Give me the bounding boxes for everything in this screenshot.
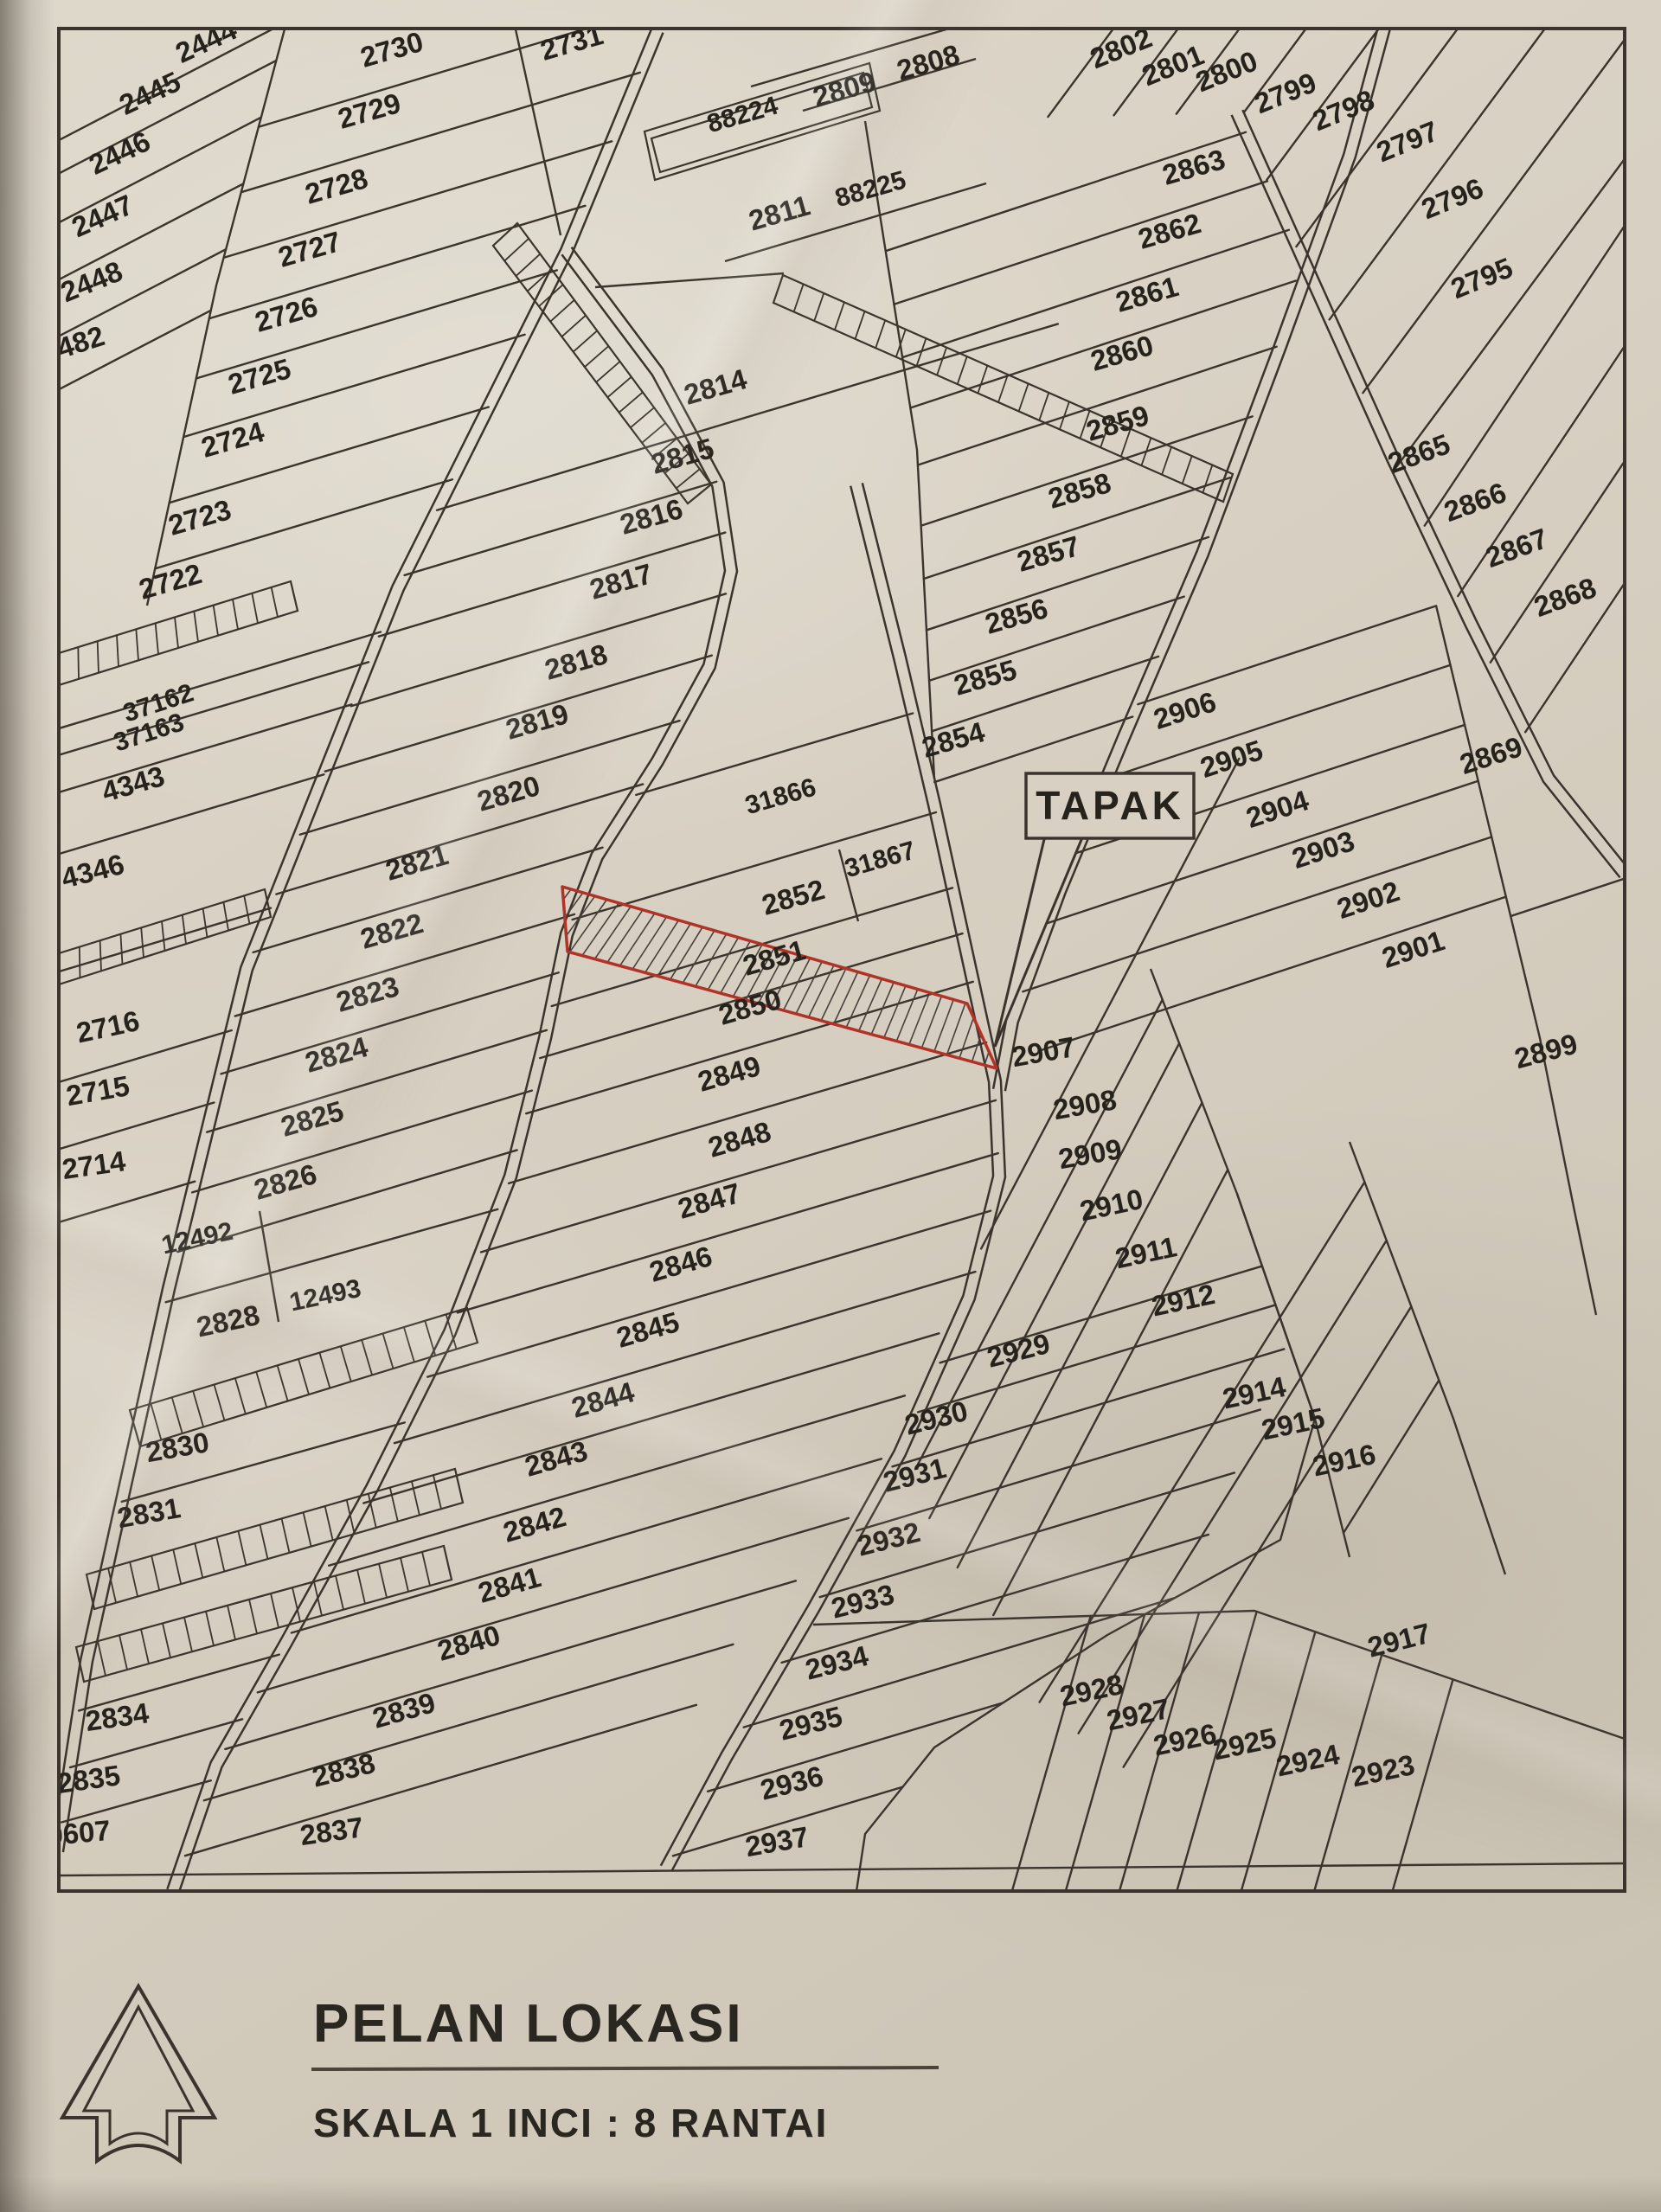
lot-label-2817: 2817 <box>586 557 656 606</box>
lot-label-2823: 2823 <box>332 970 402 1018</box>
lot-label-2855: 2855 <box>950 653 1020 702</box>
lot-label-2847: 2847 <box>674 1177 744 1225</box>
lot-label-2936: 2936 <box>757 1760 826 1806</box>
lot-label-2839: 2839 <box>369 1686 439 1734</box>
lot-label-2834: 2834 <box>83 1696 151 1737</box>
lot-label-2911: 2911 <box>1113 1230 1180 1274</box>
lot-label-2828: 2828 <box>194 1298 263 1343</box>
lot-label-2914: 2914 <box>1220 1370 1289 1415</box>
lot-label-2859: 2859 <box>1082 399 1152 447</box>
lot-label-2910: 2910 <box>1077 1183 1146 1227</box>
lot-label-2932: 2932 <box>854 1516 923 1562</box>
north-arrow-icon <box>62 1986 215 2161</box>
lot-label-2844: 2844 <box>568 1375 638 1424</box>
lot-label-2912: 2912 <box>1149 1278 1218 1322</box>
lot-label-2840: 2840 <box>433 1619 503 1667</box>
lot-label-12492: 12492 <box>159 1217 235 1260</box>
legend-block: PELAN LOKASI SKALA 1 INCI : 8 RANTAI <box>62 1986 939 2161</box>
tapak-callout-label: TAPAK <box>1036 783 1184 828</box>
lot-label-2929: 2929 <box>984 1327 1053 1374</box>
lot-label-2867: 2867 <box>1481 522 1552 574</box>
lot-label-2850: 2850 <box>715 983 785 1031</box>
lot-label-2857: 2857 <box>1013 529 1083 578</box>
lot-label-2854: 2854 <box>918 715 988 764</box>
lot-label-2819: 2819 <box>502 697 572 746</box>
lot-label-2821: 2821 <box>382 838 452 887</box>
lot-label-2730: 2730 <box>356 25 426 74</box>
lot-label-2816: 2816 <box>616 492 686 541</box>
lot-label-2858: 2858 <box>1044 466 1114 515</box>
lot-label-2444: 2444 <box>170 13 242 69</box>
lot-label-2849: 2849 <box>694 1049 764 1098</box>
plan-title: PELAN LOKASI <box>313 1994 744 2054</box>
lot-label-2820: 2820 <box>473 769 543 817</box>
lot-label-2860: 2860 <box>1087 329 1157 377</box>
lot-label-2725: 2725 <box>224 352 294 401</box>
lot-label-2937: 2937 <box>743 1820 811 1863</box>
lot-label-4343: 4343 <box>98 760 168 808</box>
lot-label-2933: 2933 <box>828 1578 897 1625</box>
lot-label-2814: 2814 <box>680 362 750 411</box>
lot-label-2726: 2726 <box>251 290 321 338</box>
lot-label-2714: 2714 <box>60 1144 127 1185</box>
lot-label-2905: 2905 <box>1196 734 1267 784</box>
lot-label-2841: 2841 <box>474 1561 544 1609</box>
lot-label-2715: 2715 <box>64 1069 132 1112</box>
lot-label-2906: 2906 <box>1150 685 1220 735</box>
lot-label-9607: 9607 <box>46 1814 112 1851</box>
lot-label-2808: 2808 <box>893 38 963 87</box>
lot-label-2866: 2866 <box>1440 476 1510 528</box>
lot-label-2845: 2845 <box>612 1305 683 1354</box>
lot-label-2901: 2901 <box>1378 924 1448 974</box>
title-underline <box>311 2068 939 2069</box>
lot-label-2796: 2796 <box>1417 171 1488 225</box>
lot-label-2731: 2731 <box>536 18 606 67</box>
north-arrow-icon-inner <box>84 2007 193 2144</box>
lot-label-2868: 2868 <box>1530 571 1600 623</box>
lot-label-2904: 2904 <box>1242 784 1313 834</box>
lot-label-2716: 2716 <box>74 1004 143 1048</box>
lot-label-31867: 31867 <box>842 837 919 884</box>
lot-label-2930: 2930 <box>901 1395 971 1441</box>
lot-label-12493: 12493 <box>287 1274 363 1318</box>
lot-label-2728: 2728 <box>301 162 371 210</box>
lot-label-3482: 3482 <box>38 319 108 369</box>
lot-label-2916: 2916 <box>1310 1438 1379 1482</box>
lot-label-2863: 2863 <box>1158 143 1228 191</box>
lot-label-2811: 2811 <box>745 189 813 236</box>
lot-label-2727: 2727 <box>274 225 344 273</box>
location-plan-map: TAPAK 2444244524462447244834822731273027… <box>0 0 1661 2212</box>
lot-label-2838: 2838 <box>309 1747 378 1793</box>
lot-label-2856: 2856 <box>981 592 1051 640</box>
lot-label-2935: 2935 <box>776 1700 845 1747</box>
lot-label-88225: 88225 <box>832 166 909 214</box>
lot-label-31866: 31866 <box>742 773 819 821</box>
lot-label-2722: 2722 <box>135 557 205 606</box>
lot-label-2907: 2907 <box>1010 1030 1078 1073</box>
lot-label-4346: 4346 <box>58 848 127 894</box>
lot-label-2925: 2925 <box>1210 1722 1279 1766</box>
lot-label-2795: 2795 <box>1446 251 1517 305</box>
highlighted-parcel <box>478 871 1004 1070</box>
lot-label-2809: 2809 <box>809 65 879 113</box>
lot-label-2826: 2826 <box>250 1157 320 1206</box>
lot-label-2852: 2852 <box>758 873 828 921</box>
lot-label-2724: 2724 <box>197 415 267 464</box>
lot-label-2830: 2830 <box>144 1426 212 1468</box>
scale-label: SKALA 1 INCI : 8 RANTAI <box>313 2100 828 2145</box>
lot-label-2818: 2818 <box>541 638 611 686</box>
lot-label-2934: 2934 <box>802 1639 872 1686</box>
lot-label-2815: 2815 <box>647 432 717 480</box>
scanned-paper-photo: TAPAK 2444244524462447244834822731273027… <box>0 0 1661 2212</box>
lot-label-2843: 2843 <box>521 1434 591 1483</box>
lot-label-2831: 2831 <box>115 1491 183 1534</box>
lot-label-2915: 2915 <box>1259 1401 1328 1446</box>
lot-label-2923: 2923 <box>1349 1748 1418 1792</box>
lot-label-2825: 2825 <box>277 1094 347 1143</box>
lot-label-2797: 2797 <box>1372 114 1443 168</box>
lot-label-2917: 2917 <box>1364 1617 1433 1664</box>
lot-label-2846: 2846 <box>645 1240 715 1288</box>
lot-label-2908: 2908 <box>1051 1083 1119 1125</box>
lot-label-2902: 2902 <box>1333 875 1403 925</box>
lot-label-88224: 88224 <box>704 91 782 138</box>
lot-label-2822: 2822 <box>356 907 426 955</box>
lot-label-2861: 2861 <box>1112 270 1182 318</box>
lot-label-2447: 2447 <box>67 189 138 244</box>
lot-label-2446: 2446 <box>84 125 155 181</box>
lot-label-2837: 2837 <box>298 1811 365 1851</box>
lot-label-2729: 2729 <box>334 87 404 135</box>
lot-label-2862: 2862 <box>1134 207 1204 255</box>
lot-label-2869: 2869 <box>1456 730 1526 780</box>
lot-label-2824: 2824 <box>301 1030 371 1079</box>
lot-label-2903: 2903 <box>1288 824 1358 875</box>
lot-label-2842: 2842 <box>499 1500 569 1548</box>
